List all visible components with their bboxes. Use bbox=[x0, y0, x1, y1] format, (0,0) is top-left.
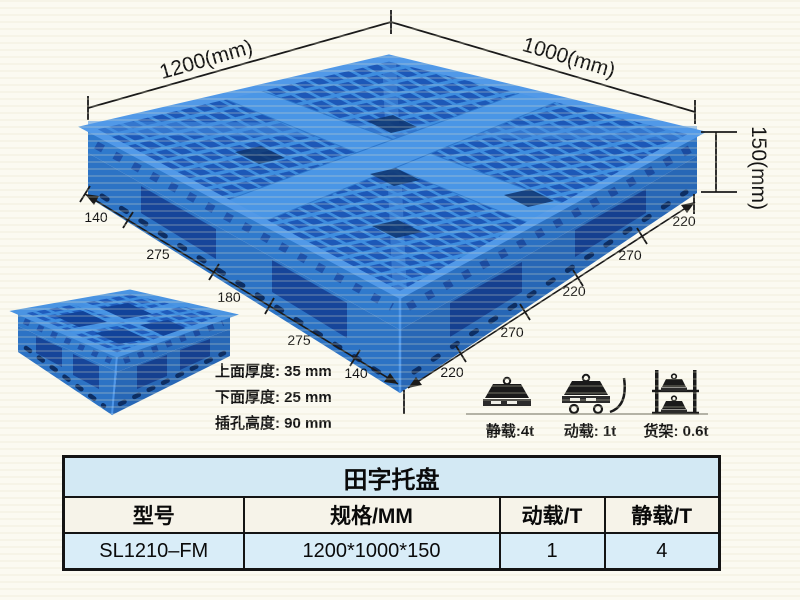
right-chain-label-3: 220 bbox=[562, 283, 586, 299]
dynamic-load-caption: 动载: 1t bbox=[564, 422, 617, 440]
right-chain-label-2: 270 bbox=[500, 324, 524, 340]
spec-table: 田字托盘 型号 规格/MM 动载/T 静载/T SL1210–FM 1200*1… bbox=[62, 455, 721, 571]
fork-height-note: 插孔高度: 90 mm bbox=[215, 414, 332, 432]
static-load-icon bbox=[483, 378, 531, 406]
cell-dynamic-load: 1 bbox=[500, 533, 605, 570]
rack-load-icon bbox=[652, 370, 699, 414]
header-static-load: 静载/T bbox=[605, 497, 720, 533]
top-thickness-note: 上面厚度: 35 mm bbox=[215, 362, 332, 380]
spec-table-title: 田字托盘 bbox=[64, 457, 720, 498]
static-load-caption: 静载:4t bbox=[486, 422, 534, 440]
left-chain-label-1: 140 bbox=[84, 209, 108, 225]
header-dynamic-load: 动载/T bbox=[500, 497, 605, 533]
length-dimension-label: 1200(mm) bbox=[157, 36, 255, 84]
left-chain-label-4: 275 bbox=[287, 332, 311, 348]
height-dimension-label: 150(mm) bbox=[747, 126, 770, 210]
cell-static-load: 4 bbox=[605, 533, 720, 570]
left-chain-label-2: 275 bbox=[146, 246, 170, 262]
left-chain-label-3: 180 bbox=[217, 289, 241, 305]
cell-model: SL1210–FM bbox=[64, 533, 244, 570]
cell-spec: 1200*1000*150 bbox=[244, 533, 500, 570]
load-legend: 静载:4t 动载: 1t 货架: 0.6t bbox=[466, 370, 709, 440]
table-row: SL1210–FM 1200*1000*150 1 4 bbox=[64, 533, 720, 570]
right-chain-label-1: 220 bbox=[440, 364, 464, 380]
header-spec: 规格/MM bbox=[244, 497, 500, 533]
rack-load-caption: 货架: 0.6t bbox=[643, 422, 708, 440]
bottom-thickness-note: 下面厚度: 25 mm bbox=[215, 388, 332, 406]
thickness-notes: 上面厚度: 35 mm 下面厚度: 25 mm 插孔高度: 90 mm bbox=[215, 362, 332, 432]
pallet-diagram: 1200(mm) 1000(mm) 150(mm) 140 275 180 27… bbox=[0, 0, 800, 450]
header-model: 型号 bbox=[64, 497, 244, 533]
right-chain-label-4: 270 bbox=[618, 247, 642, 263]
product-spec-image: 1200(mm) 1000(mm) 150(mm) 140 275 180 27… bbox=[0, 0, 800, 600]
dynamic-load-icon bbox=[562, 375, 625, 413]
left-chain-label-5: 140 bbox=[344, 365, 368, 381]
right-chain-label-5: 220 bbox=[672, 213, 696, 229]
small-pallet bbox=[18, 292, 230, 415]
